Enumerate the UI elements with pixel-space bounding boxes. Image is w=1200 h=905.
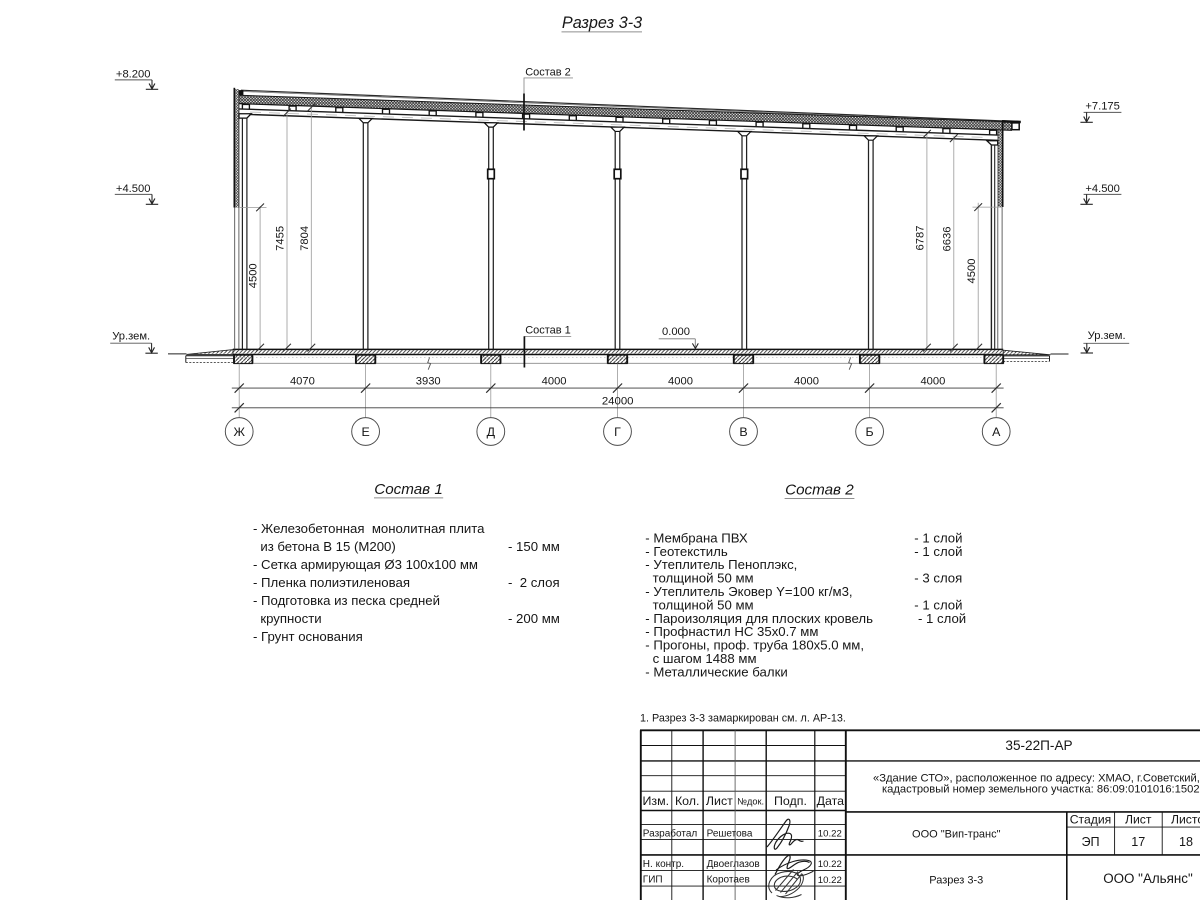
svg-text:- 3 слоя: - 3 слоя: [914, 571, 962, 586]
svg-text:- Сетка армирующая Ø3 100х100: - Сетка армирующая Ø3 100х100 мм: [253, 557, 478, 572]
svg-text:Состав 1: Состав 1: [525, 325, 571, 337]
svg-text:24000: 24000: [602, 395, 634, 407]
svg-text:Н. контр.: Н. контр.: [643, 859, 684, 870]
svg-text:А: А: [992, 425, 1001, 439]
svg-text:- Металлические балки: - Металлические балки: [645, 664, 787, 679]
svg-text:4000: 4000: [794, 376, 819, 388]
svg-text:ЭП: ЭП: [1081, 835, 1099, 849]
svg-text:Г: Г: [614, 425, 621, 439]
svg-text:ГИП: ГИП: [643, 875, 663, 886]
svg-text:+4.500: +4.500: [1085, 183, 1120, 195]
svg-text:3930: 3930: [416, 376, 441, 388]
svg-text:- 2 слоя: - 2 слоя: [508, 575, 560, 590]
svg-text:Б: Б: [866, 425, 874, 439]
svg-text:- Грунт основания: - Грунт основания: [253, 629, 363, 644]
svg-text:- Пленка полиэтиленовая: - Пленка полиэтиленовая: [253, 575, 410, 590]
svg-text:7455: 7455: [275, 226, 287, 251]
svg-text:+8.200: +8.200: [116, 69, 151, 81]
svg-text:Состав 1: Состав 1: [374, 481, 443, 498]
svg-text:Подп.: Подп.: [774, 794, 807, 808]
svg-text:Лист: Лист: [706, 794, 733, 808]
svg-text:Кол.: Кол.: [675, 794, 700, 808]
svg-text:Разрез 3-3: Разрез 3-3: [562, 14, 642, 32]
svg-text:Листов: Листов: [1171, 812, 1200, 826]
svg-text:- 150 мм: - 150 мм: [508, 539, 560, 554]
svg-text:7804: 7804: [299, 226, 311, 251]
svg-text:4500: 4500: [966, 259, 978, 284]
svg-text:- 1 слой: - 1 слой: [914, 544, 962, 559]
svg-text:Дата: Дата: [817, 794, 845, 808]
svg-text:Изм.: Изм.: [643, 794, 670, 808]
svg-text:Ур.зем.: Ур.зем.: [1088, 330, 1126, 342]
svg-text:Разрез 3-3: Разрез 3-3: [929, 874, 983, 886]
svg-text:Двоеглазов: Двоеглазов: [707, 859, 760, 870]
svg-text:35-22П-АР: 35-22П-АР: [1005, 738, 1072, 753]
svg-text:- 200 мм: - 200 мм: [508, 611, 560, 626]
svg-text:+4.500: +4.500: [116, 183, 151, 195]
svg-text:крупности: крупности: [253, 611, 322, 626]
svg-text:10.22: 10.22: [818, 859, 842, 870]
svg-text:Д: Д: [487, 425, 496, 439]
svg-text:Ж: Ж: [233, 425, 245, 439]
svg-text:0.000: 0.000: [662, 326, 690, 338]
svg-text:4500: 4500: [248, 263, 260, 288]
svg-text:4000: 4000: [542, 376, 567, 388]
svg-text:4070: 4070: [290, 376, 315, 388]
svg-text:- 1 слой: - 1 слой: [914, 611, 966, 626]
svg-text:Ур.зем.: Ур.зем.: [112, 330, 150, 342]
svg-text:4000: 4000: [668, 376, 693, 388]
svg-text:6787: 6787: [914, 226, 926, 251]
svg-text:4000: 4000: [920, 376, 945, 388]
svg-text:- Железобетонная монолитная п: - Железобетонная монолитная плита: [253, 521, 485, 536]
svg-text:ООО "Альянс": ООО "Альянс": [1103, 871, 1193, 886]
svg-text:1. Разрез 3-3 замаркирован см.: 1. Разрез 3-3 замаркирован см. л. АР-13.: [640, 713, 846, 725]
svg-text:- Подготовка из песка средней: - Подготовка из песка средней: [253, 593, 440, 608]
svg-text:№док.: №док.: [737, 796, 764, 806]
svg-text:10.22: 10.22: [818, 829, 842, 840]
svg-text:ООО "Вип-транс": ООО "Вип-транс": [912, 829, 1001, 841]
svg-text:Состав 2: Состав 2: [525, 66, 571, 78]
svg-text:Разработал: Разработал: [643, 827, 698, 839]
svg-text:+7.175: +7.175: [1085, 101, 1120, 113]
svg-text:Лист: Лист: [1125, 812, 1152, 826]
svg-text:Е: Е: [361, 425, 369, 439]
svg-text:Коротаев: Коротаев: [707, 875, 750, 886]
svg-text:18: 18: [1179, 835, 1193, 849]
svg-text:Стадия: Стадия: [1070, 812, 1112, 826]
svg-text:из бетона В 15 (М200): из бетона В 15 (М200): [253, 539, 396, 554]
svg-text:10.22: 10.22: [818, 875, 842, 886]
svg-text:6636: 6636: [942, 227, 954, 252]
svg-text:Решетова: Решетова: [707, 828, 753, 839]
svg-text:кадастровый номер земельного у: кадастровый номер земельного участка: 86…: [882, 784, 1200, 796]
svg-text:Состав 2: Состав 2: [785, 482, 854, 499]
svg-text:В: В: [739, 425, 747, 439]
svg-text:17: 17: [1131, 835, 1145, 849]
